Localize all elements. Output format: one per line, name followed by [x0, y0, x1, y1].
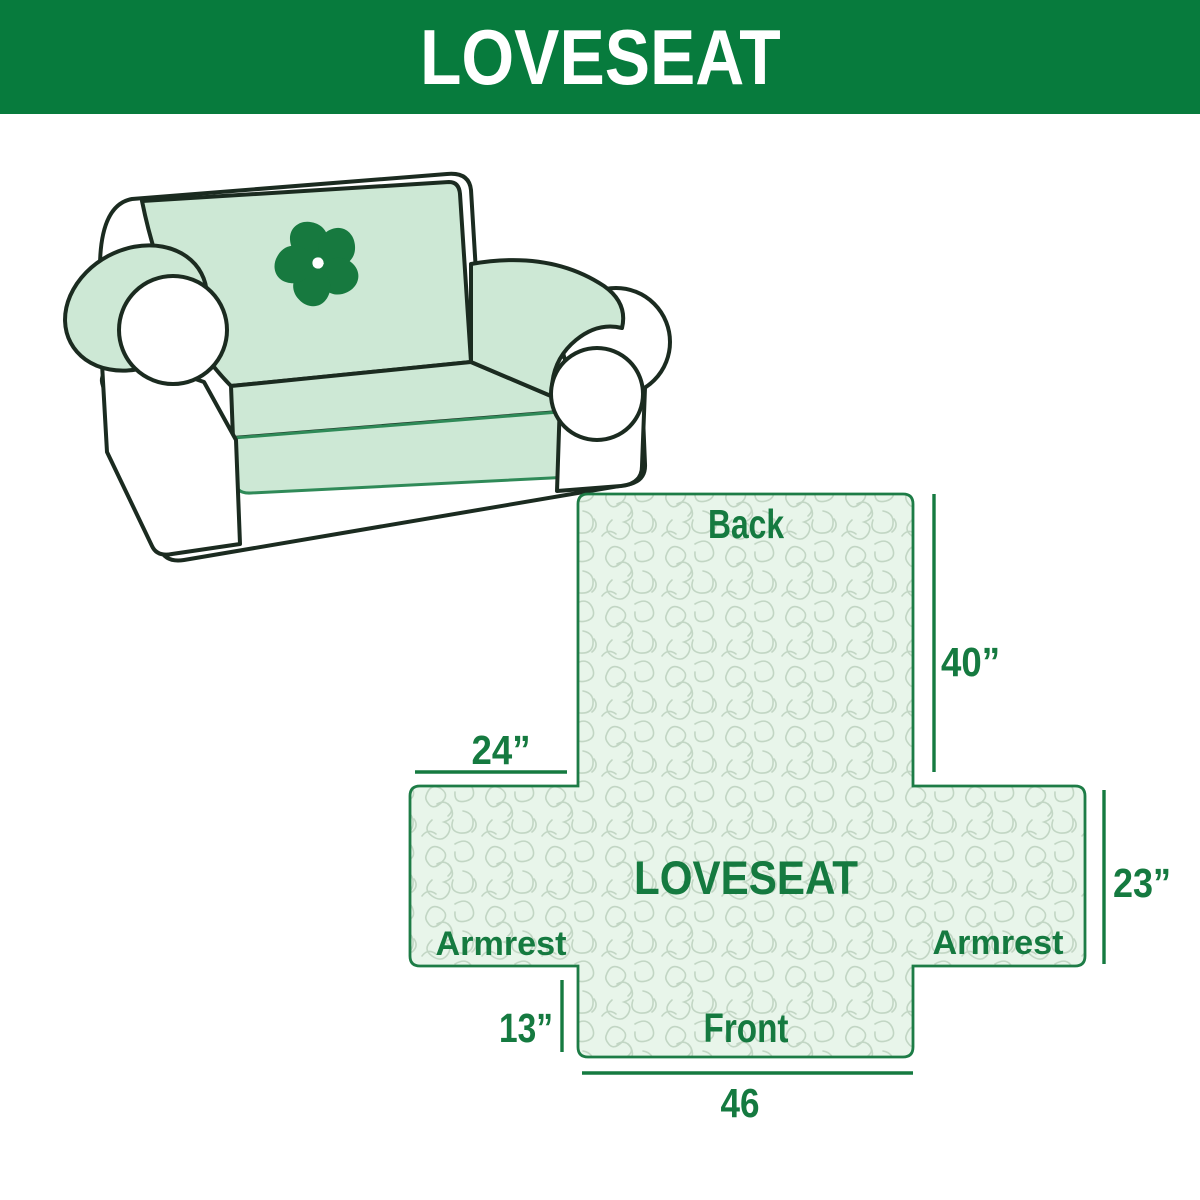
dim-back-height: 40” [941, 639, 1000, 685]
header-banner: LOVESEAT [0, 0, 1200, 114]
loveseat-infographic: Back Front Armrest Armrest LOVESEAT 40” … [0, 0, 1200, 1200]
diagram-front-label: Front [704, 1005, 789, 1051]
page-title: LOVESEAT [420, 18, 781, 96]
diagram-center-label: LOVESEAT [634, 851, 858, 904]
cover-diagram: Back Front Armrest Armrest LOVESEAT 40” … [410, 494, 1171, 1126]
dim-front-drop: 13” [499, 1005, 553, 1051]
diagram-back-label: Back [708, 501, 784, 547]
cover-outline [410, 494, 1085, 1057]
sofa-illustration [43, 174, 670, 561]
dim-armrest-top-width: 24” [472, 727, 531, 773]
sofa-left-arm-front [119, 276, 227, 384]
diagram-armrest-left-label: Armrest [436, 925, 567, 963]
dim-front-width: 46 [721, 1080, 760, 1126]
diagram-armrest-right-label: Armrest [933, 924, 1064, 962]
sofa-right-arm-front [551, 348, 643, 440]
dim-side-height: 23” [1113, 860, 1171, 906]
